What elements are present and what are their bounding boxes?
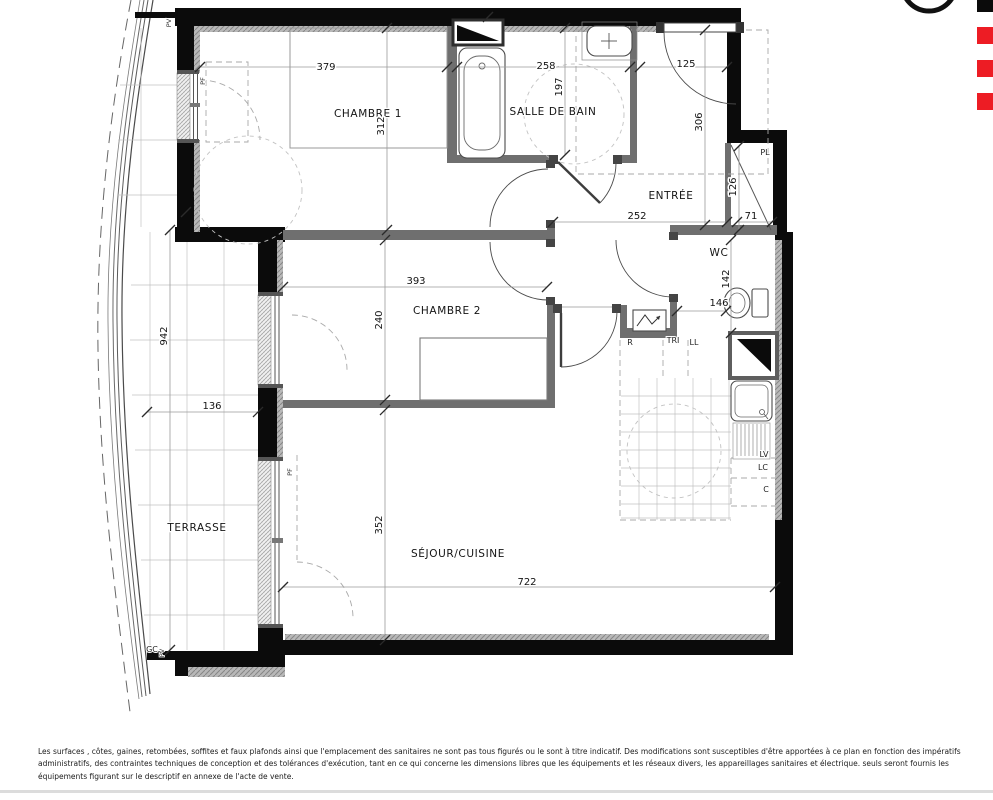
floor-plan-svg: CHAMBRE 1 SALLE DE BAIN ENTRÉE WC CHAMBR… bbox=[0, 0, 993, 742]
window-chambre2 bbox=[258, 292, 283, 388]
dim-entree-depth: 306 bbox=[694, 112, 705, 131]
partial-circle-mark bbox=[902, 0, 956, 11]
door-chambre1 bbox=[490, 160, 555, 228]
black-square-mark bbox=[977, 0, 993, 12]
heater-unit bbox=[633, 310, 666, 331]
label-lave-vaisselle: LV bbox=[759, 450, 769, 459]
dim-placard-width: 71 bbox=[745, 211, 758, 222]
dim-placard-depth: 126 bbox=[728, 177, 739, 196]
kitchen-tiles bbox=[621, 378, 731, 520]
kitchen-sink bbox=[731, 381, 772, 459]
bed-chambre1 bbox=[290, 28, 447, 148]
label-gc: GC bbox=[146, 645, 158, 654]
room-label-chambre1: CHAMBRE 1 bbox=[334, 108, 402, 120]
label-lc: LC bbox=[758, 463, 768, 472]
red-square-mark-3 bbox=[977, 93, 993, 110]
disclaimer-line-1: Les surfaces , côtes, gaines, retombées,… bbox=[38, 746, 986, 758]
label-pv-top: PV bbox=[165, 18, 173, 27]
dim-entree-width: 125 bbox=[676, 59, 695, 70]
duct-shaft-kitchen bbox=[730, 333, 777, 378]
floor-plan: CHAMBRE 1 SALLE DE BAIN ENTRÉE WC CHAMBR… bbox=[0, 0, 993, 742]
interior-walls bbox=[283, 26, 777, 408]
label-pf-sejour: PF bbox=[286, 468, 294, 476]
room-label-sejour-cuisine: SÉJOUR/CUISINE bbox=[411, 547, 505, 560]
window-sejour bbox=[258, 457, 283, 628]
dim-terrasse-width: 136 bbox=[202, 401, 221, 412]
corner-marks bbox=[902, 0, 993, 110]
label-tri: TRI bbox=[666, 336, 680, 345]
closet-label: PL bbox=[760, 148, 770, 157]
label-refrigerateur: R bbox=[627, 338, 633, 347]
bed-chambre2 bbox=[420, 338, 547, 400]
dim-terrasse-depth: 942 bbox=[159, 326, 170, 345]
bathtub bbox=[459, 48, 505, 158]
door-wc bbox=[616, 232, 678, 302]
disclaimer-line-3: équipements figurant sur le descriptif e… bbox=[38, 771, 986, 783]
dim-sejour-width: 722 bbox=[517, 577, 536, 588]
dim-wc-depth: 142 bbox=[721, 269, 732, 288]
room-label-wc: WC bbox=[710, 247, 729, 259]
dim-entree-hall-width: 252 bbox=[627, 211, 646, 222]
disclaimer-line-2: administratifs, des contraintes techniqu… bbox=[38, 758, 986, 770]
plot-boundary-curves bbox=[98, 0, 153, 712]
label-pv-bottom: PV bbox=[158, 648, 166, 657]
room-label-chambre2: CHAMBRE 2 bbox=[413, 305, 481, 317]
door-sejour bbox=[553, 304, 621, 367]
label-cuisiniere: C bbox=[763, 485, 769, 494]
dimension-labels: 379 312 258 197 125 306 252 71 126 142 1… bbox=[159, 59, 757, 588]
red-square-mark-1 bbox=[977, 27, 993, 44]
floor-plan-page: CHAMBRE 1 SALLE DE BAIN ENTRÉE WC CHAMBR… bbox=[0, 0, 993, 800]
dim-sdb-width: 258 bbox=[536, 61, 555, 72]
red-square-mark-2 bbox=[977, 60, 993, 77]
door-chambre2 bbox=[490, 239, 555, 305]
dim-chambre2-depth: 240 bbox=[374, 310, 385, 329]
duct-shaft-top bbox=[453, 20, 503, 45]
disclaimer: Les surfaces , côtes, gaines, retombées,… bbox=[38, 746, 986, 783]
label-pf-chambre1: PF bbox=[199, 77, 207, 85]
dim-chambre1-depth: 312 bbox=[376, 116, 387, 135]
washbasin bbox=[582, 22, 637, 60]
room-label-salle-de-bain: SALLE DE BAIN bbox=[510, 106, 597, 118]
window-chambre1 bbox=[177, 70, 200, 143]
doors bbox=[490, 22, 744, 367]
room-label-entree: ENTRÉE bbox=[648, 189, 693, 202]
dim-chambre1-width: 379 bbox=[316, 62, 335, 73]
dim-wc-width: 146 bbox=[709, 298, 728, 309]
dim-sejour-depth: 352 bbox=[374, 515, 385, 534]
bottom-rule bbox=[0, 790, 993, 793]
dim-chambre2-width: 393 bbox=[406, 276, 425, 287]
room-label-terrasse: TERRASSE bbox=[166, 522, 226, 534]
label-lave-linge: LL bbox=[690, 338, 699, 347]
dim-sdb-depth: 197 bbox=[554, 77, 565, 96]
